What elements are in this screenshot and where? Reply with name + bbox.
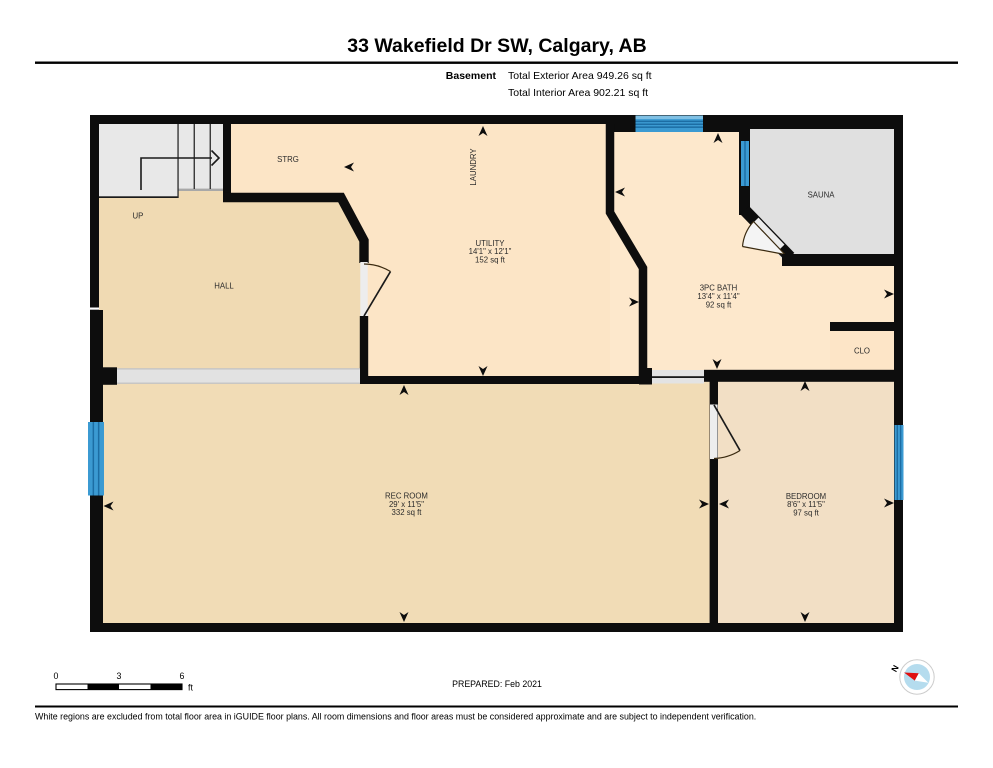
svg-text:97 sq ft: 97 sq ft: [793, 508, 819, 517]
svg-text:PREPARED: Feb 2021: PREPARED: Feb 2021: [452, 679, 542, 689]
svg-text:Total Exterior Area 949.26 sq: Total Exterior Area 949.26 sq ft: [508, 70, 652, 82]
svg-text:STRG: STRG: [277, 155, 299, 164]
svg-text:CLO: CLO: [854, 346, 870, 355]
svg-text:SAUNA: SAUNA: [808, 190, 836, 199]
svg-text:HALL: HALL: [214, 282, 234, 291]
svg-text:6: 6: [180, 671, 185, 681]
svg-text:152 sq ft: 152 sq ft: [475, 255, 506, 264]
svg-text:Basement: Basement: [446, 70, 497, 82]
svg-text:White regions are excluded fro: White regions are excluded from total fl…: [35, 712, 756, 722]
svg-text:UP: UP: [133, 212, 144, 221]
svg-text:Total Interior Area 902.21 sq: Total Interior Area 902.21 sq ft: [508, 87, 648, 99]
svg-text:33 Wakefield Dr SW, Calgary, A: 33 Wakefield Dr SW, Calgary, AB: [347, 35, 646, 57]
svg-text:332 sq ft: 332 sq ft: [392, 508, 423, 517]
svg-text:ft: ft: [188, 683, 193, 693]
svg-text:3: 3: [117, 671, 122, 681]
svg-text:LAUNDRY: LAUNDRY: [469, 148, 478, 186]
svg-text:92 sq ft: 92 sq ft: [706, 300, 732, 309]
svg-text:0: 0: [54, 671, 59, 681]
